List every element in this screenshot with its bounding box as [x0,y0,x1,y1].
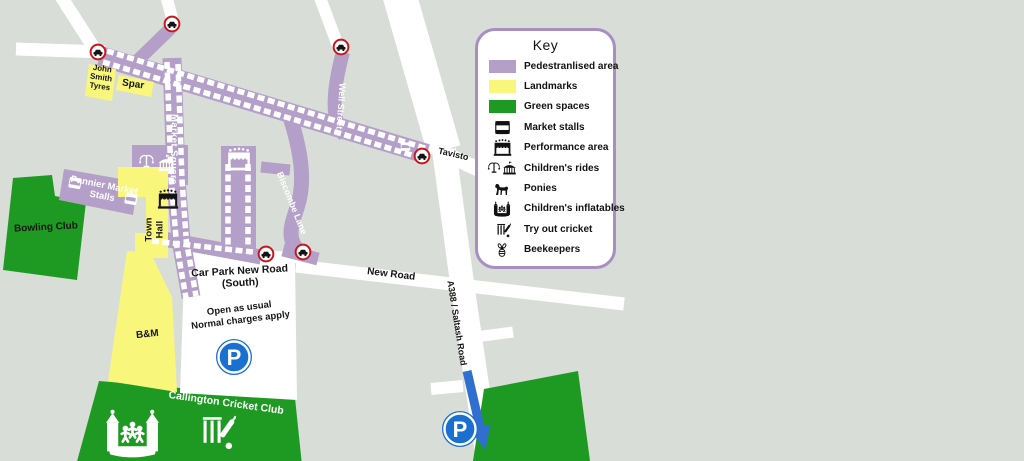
green-area-east [473,371,590,461]
bouncy-castle-icon [493,201,511,217]
landmarks-swatch [489,80,516,93]
no-vehicles-sign [165,17,180,32]
label-john-smith-tyres: John Smith Tyres [82,63,119,94]
no-vehicles-sign [415,149,430,164]
performance-area-icon [493,138,512,157]
parking-roadside: P [443,412,477,446]
parking-letter: P [453,417,468,442]
cricket-icon [494,221,511,238]
swing-ride-icon [487,161,501,175]
bee-icon [494,242,510,258]
road-a388-north [398,0,444,150]
key-item-childrens-inflatables: Children's inflatables [486,199,605,219]
road-stub-north2 [319,0,338,46]
key-item-green-spaces: Green spaces [486,97,605,117]
label-bm: B&M [135,328,159,342]
parking-letter: P [227,345,242,370]
key-title: Key [486,37,605,53]
key-item-pedestrianised: Pedestranlised area [486,56,605,76]
key-item-performance-area: Performance area [486,138,605,158]
key-item-childrens-rides: Children's rides [486,158,605,178]
label-town-hall: Town Hall [144,215,165,245]
no-vehicles-sign [91,45,106,60]
market-stall-icon [494,119,511,136]
key-item-market-stalls: Market stalls [486,117,605,137]
pedestrianised-swatch [489,60,516,73]
event-map-page: P P John Smith Tyres Spar Market Square … [0,0,1024,461]
pony-icon [494,181,510,197]
label-market-square: Market Square [167,99,179,199]
key-item-landmarks: Landmarks [486,76,605,96]
no-vehicles-sign [259,247,274,262]
no-vehicles-sign [334,40,349,55]
road-stub-right [468,332,513,338]
key-item-beekeepers: Beekeepers [486,240,605,260]
road-fork-north [60,0,94,48]
key-item-ponies: Ponies [486,178,605,198]
north-spur [136,28,171,62]
map-key: Key Pedestranlised area Landmarks Green … [475,28,616,269]
parking-carpark: P [217,340,251,374]
green-spaces-swatch [489,100,516,113]
key-item-try-out-cricket: Try out cricket [486,219,605,239]
road-stub-left [431,386,463,389]
carousel-icon [502,161,517,176]
fore-street [100,56,427,154]
